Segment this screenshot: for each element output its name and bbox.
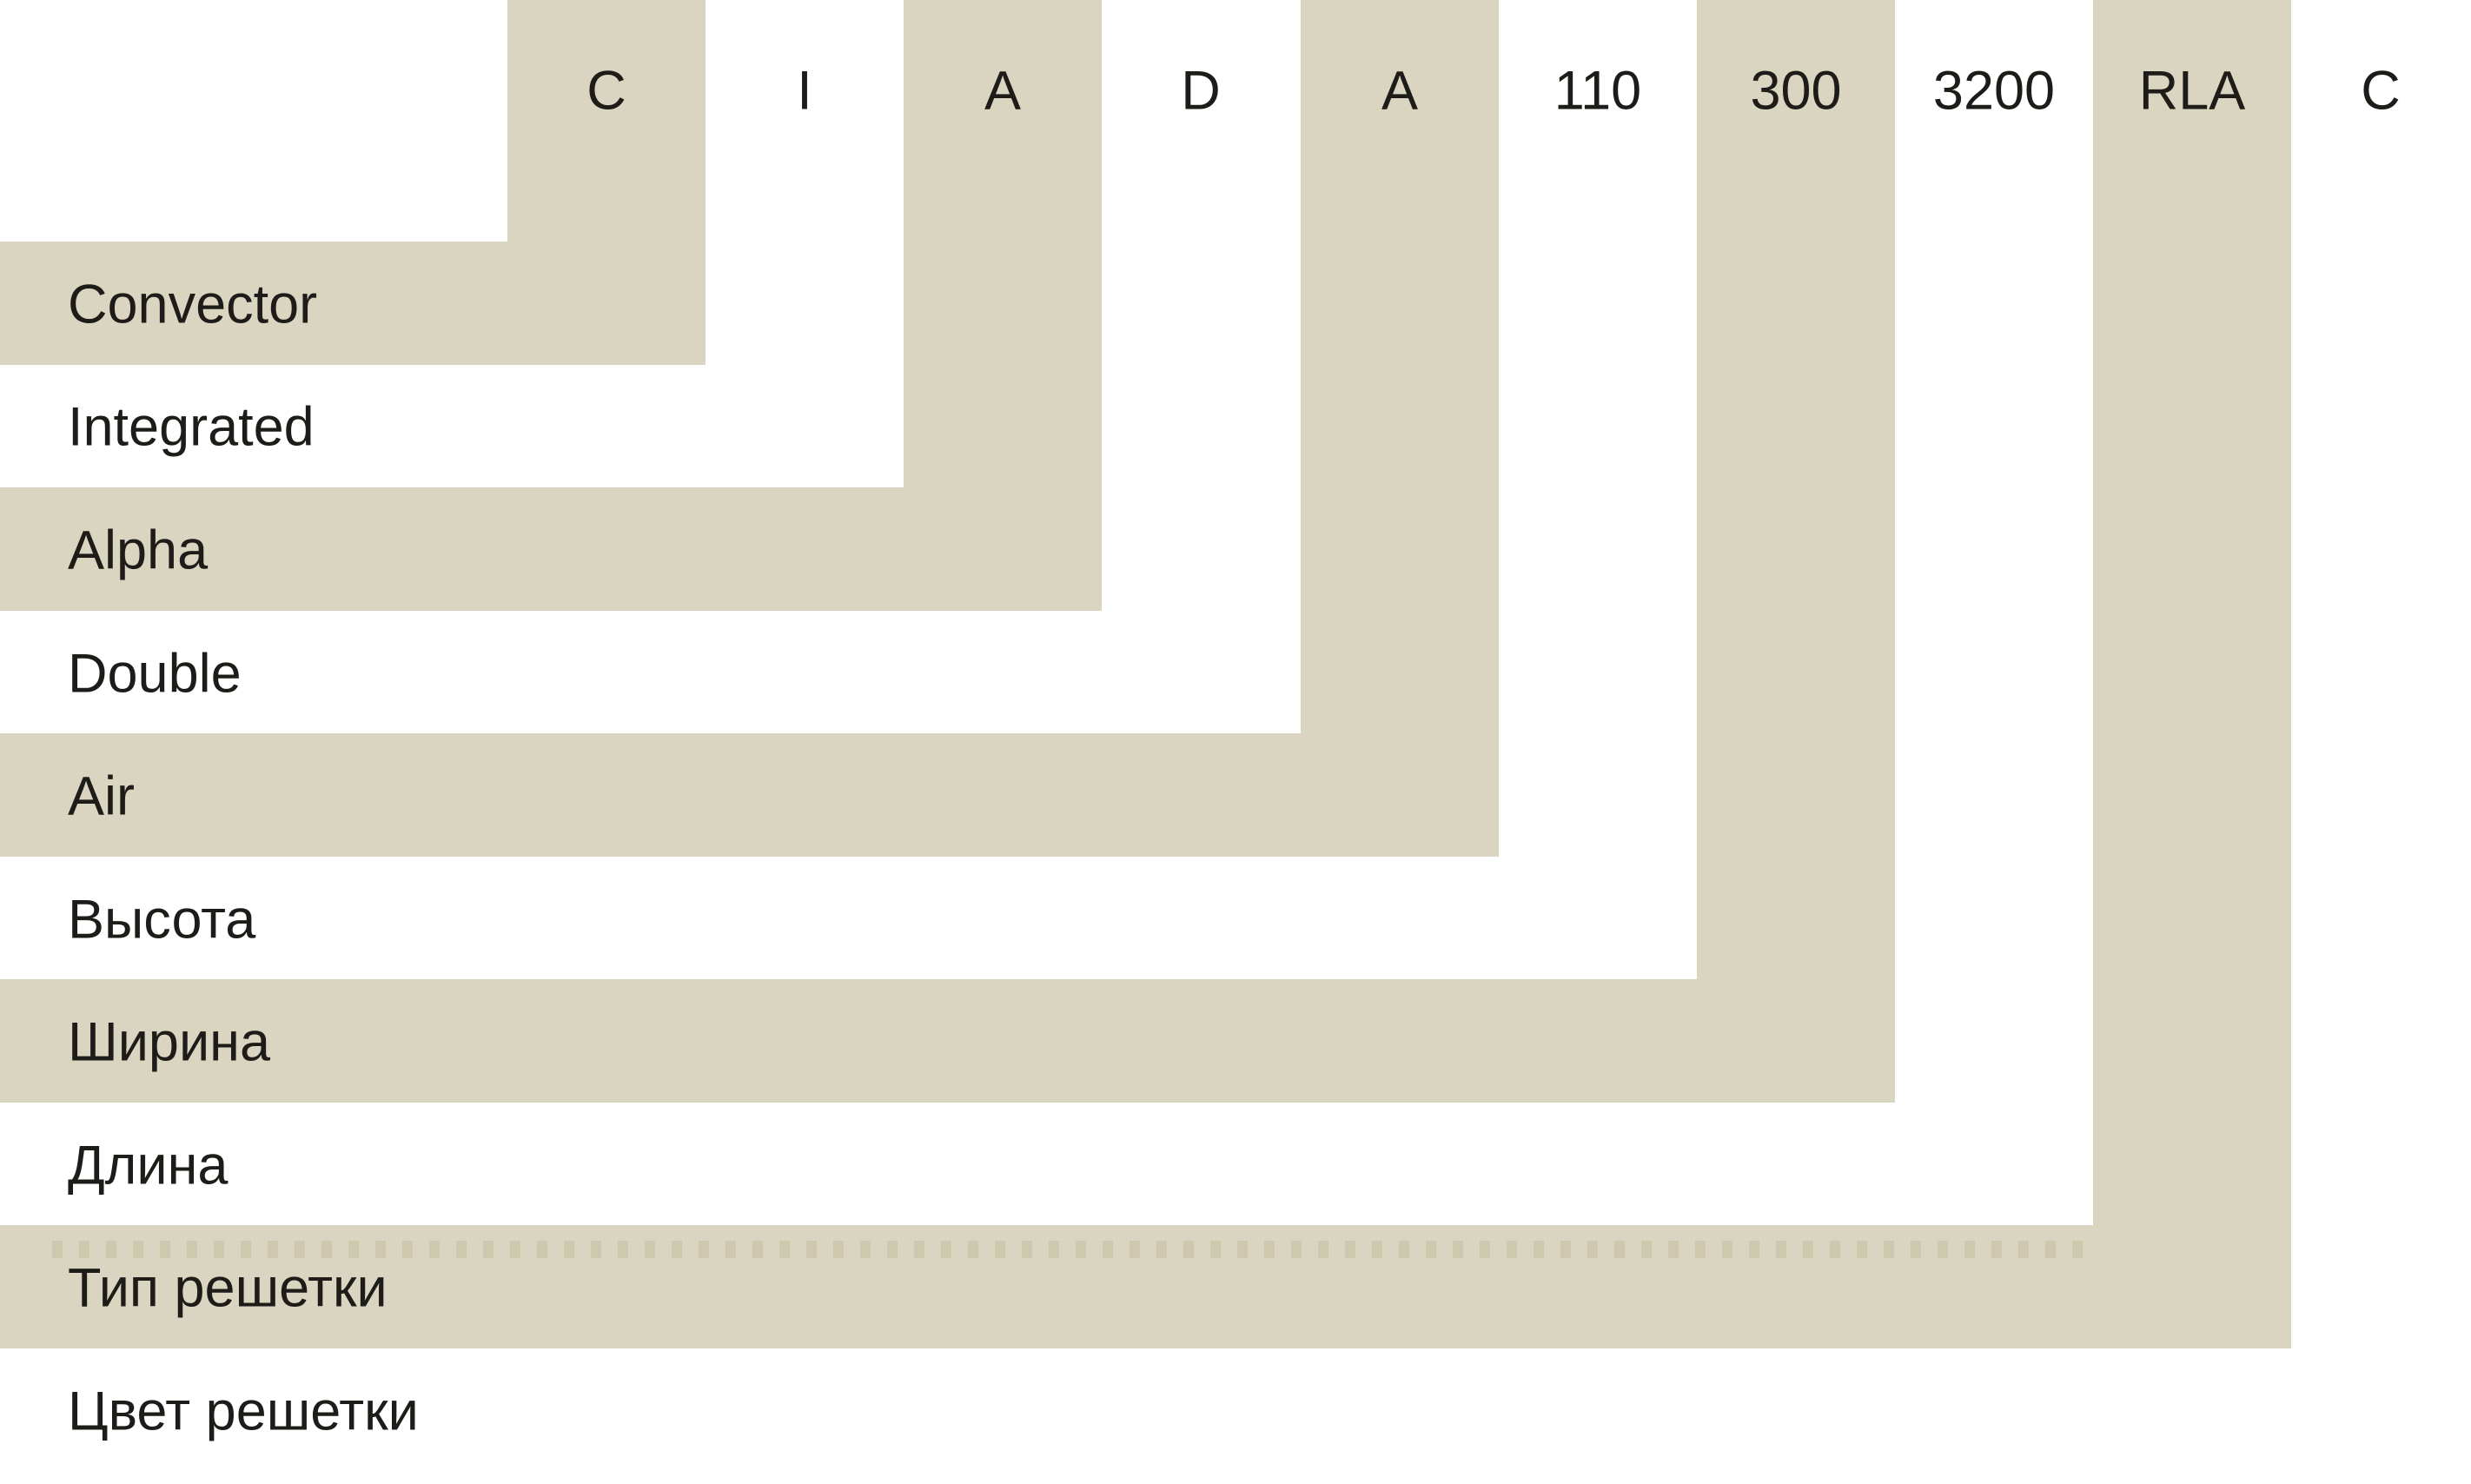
segment-label-2: Integrated (68, 401, 315, 455)
segment-label-4: Double (68, 647, 242, 702)
segment-label-3: Alpha (68, 524, 208, 579)
product-code-diagram: C I A D A 110 300 3200 RLA C Convector I… (0, 0, 2471, 1484)
code-segment-4: D (1181, 64, 1221, 119)
perforation-dotted-line (52, 1241, 2093, 1258)
code-segment-9: RLA (2139, 64, 2246, 119)
code-segment-1: C (586, 64, 626, 119)
code-segment-5: A (1381, 64, 1418, 119)
code-column-band-9 (2093, 0, 2291, 1348)
code-segment-8: 3200 (1933, 64, 2055, 119)
code-segment-3: A (984, 64, 1021, 119)
code-column-band-5 (1301, 0, 1499, 857)
segment-label-5: Air (68, 770, 135, 825)
code-segment-7: 300 (1750, 64, 1841, 119)
segment-label-10: Цвет решетки (68, 1385, 419, 1440)
code-segment-6: 110 (1554, 64, 1641, 119)
segment-label-9: Тип решетки (68, 1262, 388, 1316)
label-row-band-5 (0, 733, 1499, 857)
code-segment-10: C (2361, 64, 2401, 119)
segment-label-8: Длина (68, 1139, 228, 1194)
code-segment-2: I (797, 64, 812, 119)
label-row-band-7 (0, 979, 1895, 1103)
segment-label-7: Ширина (68, 1016, 270, 1070)
segment-label-6: Высота (68, 893, 255, 948)
code-column-band-7 (1697, 0, 1895, 1103)
segment-label-1: Convector (68, 278, 317, 333)
